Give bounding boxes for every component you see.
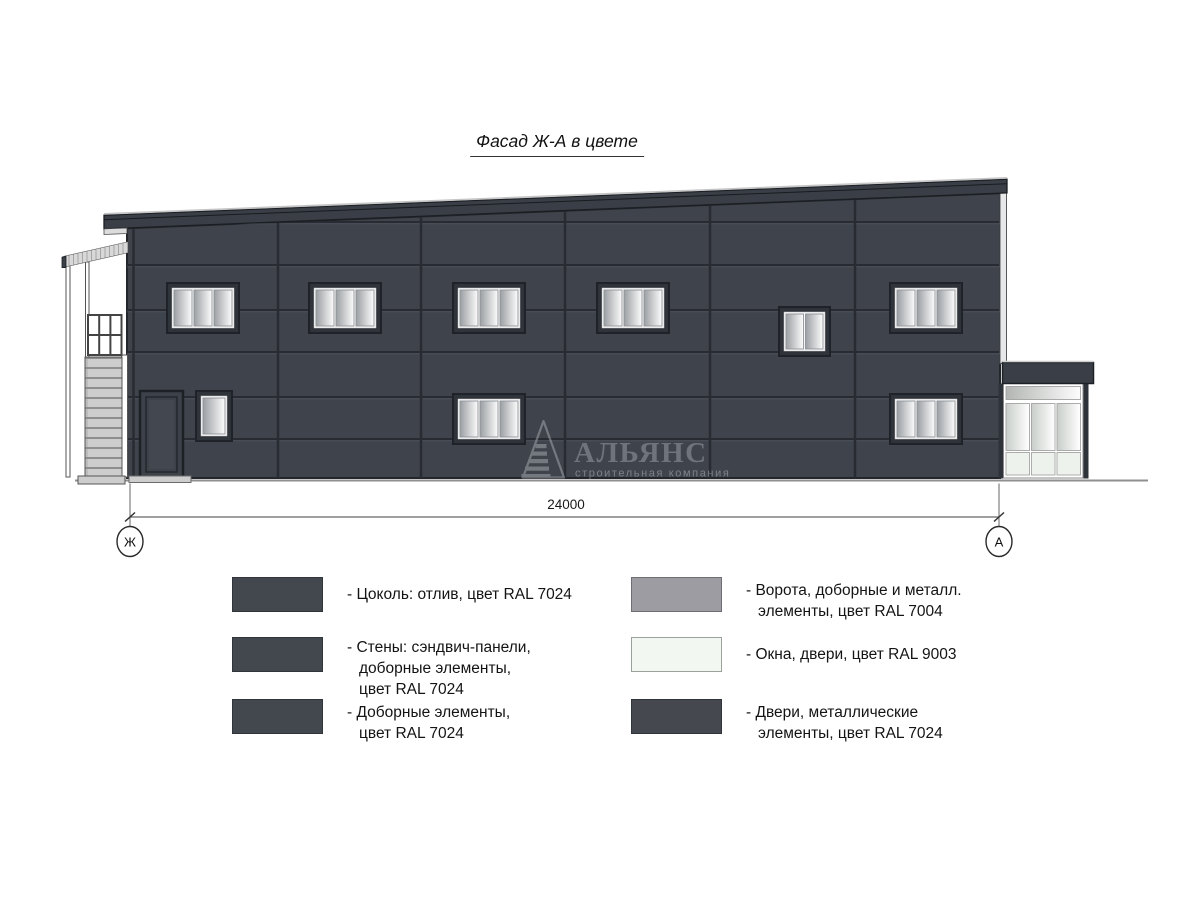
axis-marker-right: А xyxy=(986,527,1012,557)
vestibule-column xyxy=(1083,384,1089,479)
window-3pane xyxy=(890,394,962,444)
metal-door xyxy=(140,391,183,478)
transom-window xyxy=(1006,387,1081,400)
glass-doors xyxy=(1006,404,1081,476)
dimension-annotation: 24000 Ж А xyxy=(117,484,1012,557)
window-3pane xyxy=(167,283,239,333)
legend-label: - Окна, двери, цвет RAL 9003 xyxy=(746,644,957,665)
external-stair xyxy=(62,242,128,484)
vestibule-column xyxy=(999,384,1004,479)
facade-elevation: АЛЬЯНС строительная компания 24000 Ж А xyxy=(0,0,1200,570)
axis-marker-left: Ж xyxy=(117,527,143,557)
window-1pane xyxy=(196,391,232,441)
entrance-vestibule xyxy=(999,362,1094,479)
legend-label: - Стены: сэндвич-панели, доборные элемен… xyxy=(347,637,531,700)
railing-panel xyxy=(88,315,122,355)
legend-swatch xyxy=(232,699,323,734)
legend-item-windows: - Окна, двери, цвет RAL 9003 xyxy=(631,637,957,672)
stair-base-platform xyxy=(78,476,125,484)
window-3pane xyxy=(453,283,525,333)
window-3pane xyxy=(597,283,669,333)
legend-swatch xyxy=(631,699,722,734)
stair-canopy xyxy=(62,242,128,268)
canopy-post xyxy=(66,264,70,477)
legend-swatch xyxy=(631,577,722,612)
legend-label: - Цоколь: отлив, цвет RAL 7024 xyxy=(347,584,572,605)
axis-label: Ж xyxy=(124,535,136,550)
legend-item-plinth: - Цоколь: отлив, цвет RAL 7024 xyxy=(232,577,572,612)
facade-wall xyxy=(127,193,1000,478)
legend-item-gates: - Ворота, доборные и металл. элементы, ц… xyxy=(631,577,962,622)
legend-label: - Двери, металлические элементы, цвет RA… xyxy=(746,702,943,744)
corner-flashing xyxy=(1000,181,1007,364)
watermark-name: АЛЬЯНС xyxy=(574,437,708,469)
window-3pane xyxy=(309,283,381,333)
window-3pane xyxy=(890,283,962,333)
legend-label: - Доборные элементы, цвет RAL 7024 xyxy=(347,702,510,744)
legend-item-walls: - Стены: сэндвич-панели, доборные элемен… xyxy=(232,637,531,700)
legend-swatch xyxy=(631,637,722,672)
fascia-overhang-soffit xyxy=(104,228,127,235)
facade-drawing-page: Фасад Ж-А в цвете xyxy=(0,0,1200,900)
dimension-value: 24000 xyxy=(547,497,585,512)
legend-item-trim: - Доборные элементы, цвет RAL 7024 xyxy=(232,699,510,744)
window-2pane xyxy=(779,307,830,356)
door-step xyxy=(129,476,191,483)
stair-steps xyxy=(85,357,122,477)
legend-label: - Ворота, доборные и металл. элементы, ц… xyxy=(746,580,962,622)
legend-swatch xyxy=(232,577,323,612)
window-3pane xyxy=(453,394,525,444)
legend-item-doors: - Двери, металлические элементы, цвет RA… xyxy=(631,699,943,744)
legend-swatch xyxy=(232,637,323,672)
vestibule-roof xyxy=(1003,363,1094,384)
watermark-subtitle: строительная компания xyxy=(575,468,730,480)
axis-label: А xyxy=(995,535,1004,550)
